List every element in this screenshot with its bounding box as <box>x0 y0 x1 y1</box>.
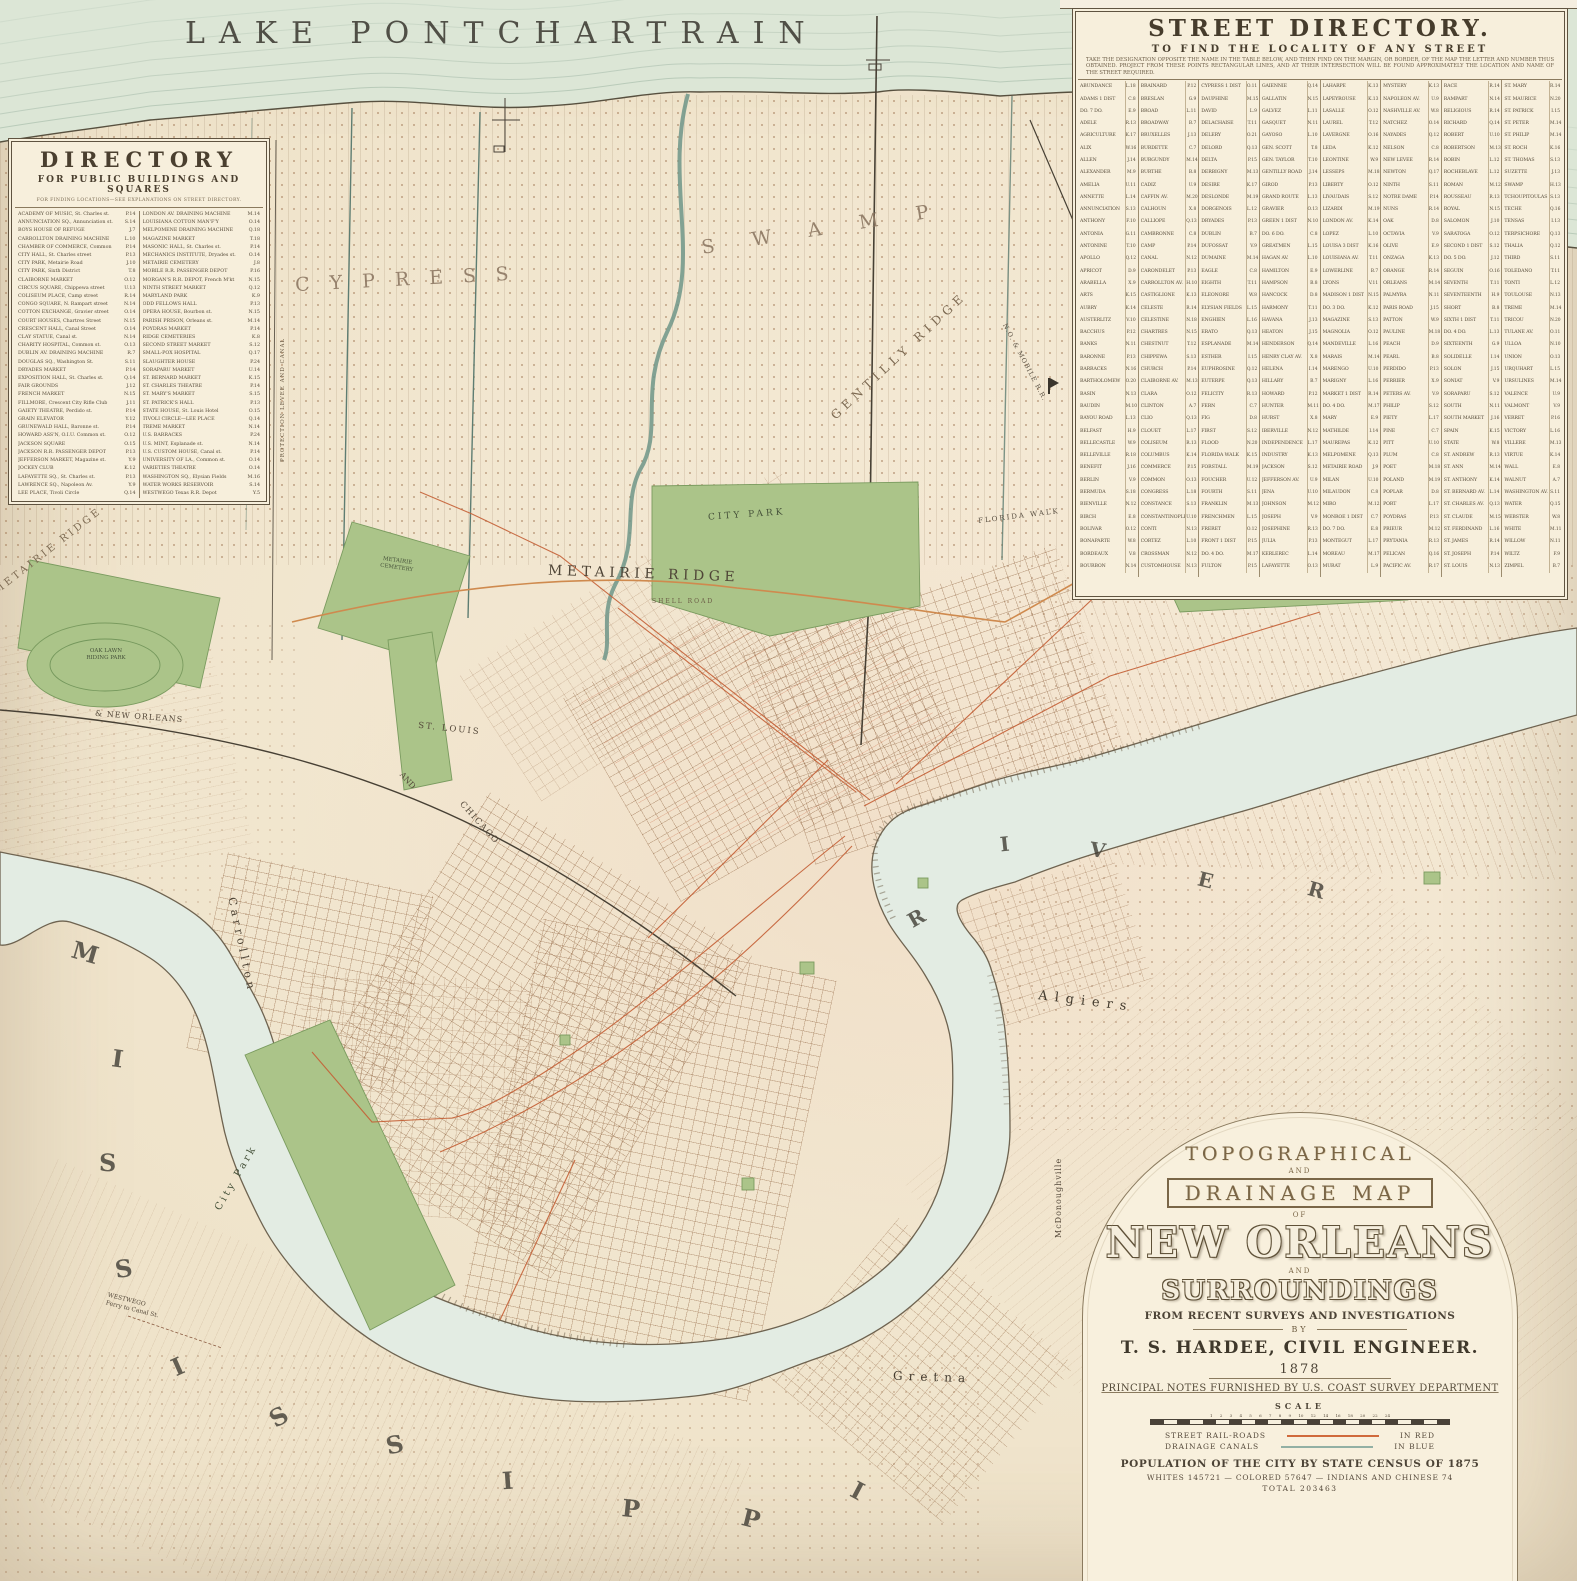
street-entry: PLUMC.8 <box>1383 450 1439 462</box>
directory-entry: ACADEMY OF MUSIC, St. Charles st.P.14 <box>18 211 136 219</box>
street-entry: HUNTERM.11 <box>1262 401 1318 413</box>
directory-entry: COLISEUM PLACE, Camp streetR.14 <box>18 293 136 301</box>
street-entry: PITTU.10 <box>1383 438 1439 450</box>
street-entry: CONSTANCES.13 <box>1141 499 1197 511</box>
water-name-letter: S <box>264 1400 294 1434</box>
street-entry: JOSEPHINER.13 <box>1262 524 1318 536</box>
street-entry: GRAND ROUTEL.13 <box>1262 192 1318 204</box>
street-entry: LOUISIANA AV.T.11 <box>1323 253 1379 265</box>
street-entry: WHITEM.11 <box>1504 524 1560 536</box>
street-entry: ST. PETERM.14 <box>1504 118 1560 130</box>
street-entry: MARIGNYL.16 <box>1323 376 1379 388</box>
street-entry: CLINTONA.7 <box>1141 401 1197 413</box>
street-entry: LAURELT.12 <box>1323 118 1379 130</box>
map-legend: STREET RAIL-ROADS IN RED DRAINAGE CANALS… <box>1165 1431 1435 1451</box>
street-entry: FORSTALLM.19 <box>1201 462 1257 474</box>
street-entry: HAMPSONB.8 <box>1262 278 1318 290</box>
legend-rail-label: STREET RAIL-ROADS <box>1165 1431 1266 1440</box>
street-entry: RICHARDQ.14 <box>1444 118 1500 130</box>
railroad-label-stlouis: ST. LOUIS <box>418 721 481 737</box>
street-entry: BRAINARDP.12 <box>1141 81 1197 93</box>
street-entry: BAUDINM.10 <box>1080 401 1136 413</box>
street-entry: BRUXELLESJ.13 <box>1141 130 1197 142</box>
street-entry: GIRODP.13 <box>1262 180 1318 192</box>
street-entry: FULTONP.15 <box>1201 561 1257 573</box>
street-entry: FRONT 1 DISTP.15 <box>1201 536 1257 548</box>
directory-entry: CONGO SQUARE, N. Rampart streetN.14 <box>18 301 136 309</box>
street-entry: GASQUETN.11 <box>1262 118 1318 130</box>
street-entry: LAHARPEK.13 <box>1323 81 1379 93</box>
street-entry: COLUMBUSK.14 <box>1141 450 1197 462</box>
street-entry: SARATOGAO.12 <box>1444 229 1500 241</box>
directory-entry: NINTH STREET MARKETQ.12 <box>143 285 261 293</box>
street-entry: LIBERTYO.12 <box>1323 180 1379 192</box>
metairie-cemetery-label: METAIRIE CEMETERY <box>351 552 442 578</box>
street-entry: ANTONINET.10 <box>1080 241 1136 253</box>
street-entry: CHIPPEWAS.13 <box>1141 352 1197 364</box>
street-entry: LYONSV.11 <box>1323 278 1379 290</box>
cartouche-surroundings: SURROUNDINGS <box>1083 1276 1517 1306</box>
directory-column-right: LONDON AV. DRAINING MACHINEM.14LOUISIANA… <box>139 211 264 498</box>
street-entry: LONDON AV.K.14 <box>1323 216 1379 228</box>
cartouche-drainage-map: DRAINAGE MAP <box>1167 1178 1434 1208</box>
water-name-letter: E <box>1195 867 1216 894</box>
street-entry: BROADL.11 <box>1141 106 1197 118</box>
directory-entry: JACKSON R.R. PASSENGER DEPOTP.13 <box>18 449 136 457</box>
street-entry: IBERVILLEN.12 <box>1262 426 1318 438</box>
directory-entry: CHAMBER OF COMMERCE, CommonP.14 <box>18 244 136 252</box>
street-entry: SONIATV.9 <box>1444 376 1500 388</box>
street-entry: FOUCHERU.12 <box>1201 475 1257 487</box>
street-entry: ENGHIENL.16 <box>1201 315 1257 327</box>
directory-entry: DUBLIN AV. DRAINING MACHINER.7 <box>18 350 136 358</box>
directory-entry: WATER WORKS RESERVOIRS.14 <box>143 482 261 490</box>
metairie-cemetery-line2: CEMETERY <box>351 559 441 578</box>
street-entry: ST. ROCHK.16 <box>1504 143 1560 155</box>
street-entry: CAFFIN AV.M.20 <box>1141 192 1197 204</box>
street-directory-panel: STREET DIRECTORY. TO FIND THE LOCALITY O… <box>1072 8 1568 600</box>
street-entry: INDUSTRYK.13 <box>1262 450 1318 462</box>
street-entry: ESPLANADEM.14 <box>1201 339 1257 351</box>
street-entry: MANDEVILLEL.16 <box>1323 339 1379 351</box>
street-entry: POETM.18 <box>1383 462 1439 474</box>
railroad-label-mobile: N.O. & MOBILE R.R. <box>1001 322 1049 402</box>
street-entry: ALLENJ.14 <box>1080 155 1136 167</box>
street-entry: ROYALN.15 <box>1444 204 1500 216</box>
street-entry: FLOODN.20 <box>1201 438 1257 450</box>
street-entry: ROCHEBLAVEL.12 <box>1444 167 1500 179</box>
westwego-line2: Ferry to Canal St. <box>105 1299 159 1319</box>
street-entry: ST. CHARLES AV.Q.13 <box>1444 499 1500 511</box>
street-entry: ST. ANTHONYK.14 <box>1444 475 1500 487</box>
street-entry: ANNETTEL.14 <box>1080 192 1136 204</box>
street-entry: NEWTONQ.17 <box>1383 167 1439 179</box>
railroad-label-chicago: CHICAGO <box>457 800 501 847</box>
street-entry: PARIS ROADJ.15 <box>1383 303 1439 315</box>
street-entry: SOUTHN.11 <box>1444 401 1500 413</box>
street-entry: DELORDQ.13 <box>1201 143 1257 155</box>
cartouche-new-orleans: NEW ORLEANS <box>1083 1221 1517 1265</box>
street-entry: BARTHOLOMEWO.20 <box>1080 376 1136 388</box>
street-entry: ST. THOMASS.13 <box>1504 155 1560 167</box>
street-entry: FRENCHMENL.15 <box>1201 512 1257 524</box>
directory-entry: CHARITY HOSPITAL, Common st.O.13 <box>18 342 136 350</box>
street-entry: GREATMENL.15 <box>1262 241 1318 253</box>
directory-subtitle: FOR PUBLIC BUILDINGS AND SQUARES <box>15 175 263 195</box>
directory-entry: TIVOLI CIRCLE—LEE PLACEQ.14 <box>143 416 261 424</box>
street-entry: HILLARYB.7 <box>1262 376 1318 388</box>
directory-entry: LAWRENCE SQ., Napoleon Av.Y.9 <box>18 482 136 490</box>
street-entry: CASTIGLIONEK.13 <box>1141 290 1197 302</box>
directory-entry: CRESCENT HALL, Canal StreetO.14 <box>18 326 136 334</box>
florida-walk-label: FLORIDA WALK <box>978 507 1060 525</box>
street-entry: GAYOSOL.10 <box>1262 130 1318 142</box>
directory-entry: EXPOSITION HALL, St. Charles st.Q.14 <box>18 375 136 383</box>
stipple-texture <box>990 560 1577 1130</box>
street-entry: CORTEZL.10 <box>1141 536 1197 548</box>
street-entry: ERATOQ.13 <box>1201 327 1257 339</box>
street-entry: PALMYRAN.11 <box>1383 290 1439 302</box>
street-entry: JULIAP.13 <box>1262 536 1318 548</box>
cartouche-and2: AND <box>1083 1267 1517 1275</box>
street-entry: WALNUTA.7 <box>1504 475 1560 487</box>
street-entry: DESIREK.17 <box>1201 180 1257 192</box>
street-entry: POPLARD.8 <box>1383 487 1439 499</box>
scale-bar <box>1150 1419 1450 1425</box>
street-entry: VIRTUEK.14 <box>1504 450 1560 462</box>
field-strips-west <box>0 596 254 904</box>
street-entry: CARROLLTON AV.H.10 <box>1141 278 1197 290</box>
street-entry: SEGUINO.16 <box>1444 266 1500 278</box>
street-entry: CHURCHP.14 <box>1141 364 1197 376</box>
street-entry: THIRDS.11 <box>1504 253 1560 265</box>
directory-entry: MASONIC HALL, St. Charles st.P.14 <box>143 244 261 252</box>
bayou-st-john <box>604 94 688 660</box>
street-entry: CAMPP.14 <box>1141 241 1197 253</box>
street-entry: DUMAINEM.14 <box>1201 253 1257 265</box>
directory-entry: WASHINGTON SQ., Elysian FieldsM.16 <box>143 474 261 482</box>
street-entry: CONGRESSL.18 <box>1141 487 1197 499</box>
street-entry: BERLINV.9 <box>1080 475 1136 487</box>
street-entry: CYPRESS 1 DISTO.11 <box>1201 81 1257 93</box>
water-name-letter: R <box>903 903 929 932</box>
legend-canal-row: DRAINAGE CANALS IN BLUE <box>1165 1442 1435 1451</box>
street-entry: SOUTH MARKETJ.16 <box>1444 413 1500 425</box>
street-entry: SORAPARUS.12 <box>1444 389 1500 401</box>
street-directory-table: ABUNDANCEL.18ADAMS 1 DISTC.8DO. 7 DO.E.9… <box>1078 79 1562 577</box>
street-entry: JEFFERSON AV.U.9 <box>1262 475 1318 487</box>
street-entry: ROUSSEAUR.13 <box>1444 192 1500 204</box>
street-entry: POLANDM.19 <box>1383 475 1439 487</box>
street-entry: HAVANAJ.13 <box>1262 315 1318 327</box>
street-entry: MYSTERYK.13 <box>1383 81 1439 93</box>
street-entry: FRERETO.12 <box>1201 524 1257 536</box>
directory-entry: SLAUGHTER HOUSEP.24 <box>143 359 261 367</box>
street-entry: SOLONJ.15 <box>1444 364 1500 376</box>
street-entry: FELICITYR.13 <box>1201 389 1257 401</box>
street-entry: EIGHTHT.11 <box>1201 278 1257 290</box>
directory-entry: LONDON AV. DRAINING MACHINEM.14 <box>143 211 261 219</box>
street-entry: ST. JAMESR.14 <box>1444 536 1500 548</box>
street-entry: PRIEURM.12 <box>1383 524 1439 536</box>
metairie-ridge-west-label: METAIRIE RIDGE <box>0 506 104 597</box>
street-entry: TOLEDANOT.11 <box>1504 266 1560 278</box>
directory-entry: LOUISIANA COTTON MAN'F'YO.14 <box>143 219 261 227</box>
street-entry: PRYTANIAR.13 <box>1383 536 1439 548</box>
water-name-letter: P <box>621 1493 642 1524</box>
street-entry: BURTHEB.8 <box>1141 167 1197 179</box>
street-entry: JENAU.10 <box>1262 487 1318 499</box>
street-entry: PHILIPS.12 <box>1383 401 1439 413</box>
street-entry: BANKSN.11 <box>1080 339 1136 351</box>
street-entry: HOWARDP.12 <box>1262 389 1318 401</box>
street-entry: CHARTRESN.15 <box>1141 327 1197 339</box>
street-entry: TECHEQ.16 <box>1504 204 1560 216</box>
mcdonoughville-label: McDonoughville <box>1054 1158 1063 1238</box>
water-name-letter: I <box>110 1043 125 1073</box>
street-entry: GREEN 1 DISTN.10 <box>1262 216 1318 228</box>
street-entry: BELLEVILLER.18 <box>1080 450 1136 462</box>
street-entry: ST. BERNARD AV.L.14 <box>1444 487 1500 499</box>
cartouche-from-surveys: FROM RECENT SURVEYS AND INVESTIGATIONS <box>1083 1310 1517 1322</box>
street-entry: ROMANM.12 <box>1444 180 1500 192</box>
directory-column-left: ACADEMY OF MUSIC, St. Charles st.P.14ANN… <box>15 211 139 498</box>
legend-rail-line <box>1287 1435 1379 1437</box>
water-name-letter: M <box>69 935 103 970</box>
street-entry: VILLEREM.13 <box>1504 438 1560 450</box>
protection-levee-line <box>272 140 276 660</box>
street-entry: GEN. SCOTTT.8 <box>1262 143 1318 155</box>
directory-entry: LAFAYETTE SQ., St. Charles st.P.13 <box>18 474 136 482</box>
street-column: ST. MARYR.14ST. MAURICEN.20ST. PATRICKI.… <box>1501 80 1562 577</box>
legend-rail-row: STREET RAIL-ROADS IN RED <box>1165 1431 1435 1440</box>
street-entry: EUTERPEQ.13 <box>1201 376 1257 388</box>
street-entry: MONTEGUTL.17 <box>1323 536 1379 548</box>
map-canvas: LAKE PONTCHARTRAIN SPANISH FORT CYPRESS … <box>0 0 1577 1581</box>
street-entry: SWAMPH.13 <box>1504 180 1560 192</box>
street-entry: ST. MARYR.14 <box>1504 81 1560 93</box>
by-word: BY <box>1291 1325 1308 1334</box>
street-entry: ANTONIAG.11 <box>1080 229 1136 241</box>
legend-canal-note: IN BLUE <box>1394 1442 1435 1451</box>
street-entry: WASHINGTON AV.S.11 <box>1504 487 1560 499</box>
street-grid-gretna <box>767 1218 1075 1523</box>
street-entry: ADELER.13 <box>1080 118 1136 130</box>
street-entry: ROBERTU.10 <box>1444 130 1500 142</box>
directory-entry: U.S. BARRACKSP.24 <box>143 432 261 440</box>
street-entry: HENDERSONQ.14 <box>1262 339 1318 351</box>
street-entry: ONZAGAK.13 <box>1383 253 1439 265</box>
directory-entry: ST. BERNARD MARKETK.15 <box>143 375 261 383</box>
street-entry: ORLEANSM.14 <box>1383 278 1439 290</box>
street-entry: MARYE.9 <box>1323 413 1379 425</box>
street-directory-instructions: TAKE THE DESIGNATION OPPOSITE THE NAME I… <box>1086 57 1554 76</box>
street-entry: COMMONO.13 <box>1141 475 1197 487</box>
water-name-letter: V <box>1088 837 1107 863</box>
street-entry: AUBRYK.14 <box>1080 303 1136 315</box>
street-entry: WILTZF.9 <box>1504 549 1560 561</box>
directory-entry: SECOND STREET MARKETS.12 <box>143 342 261 350</box>
street-entry: DAVIDL.9 <box>1201 106 1257 118</box>
street-entry: NOTRE DAMEP.14 <box>1383 192 1439 204</box>
street-entry: DUBLINB.7 <box>1201 229 1257 241</box>
water-name-letter: R <box>1305 876 1328 904</box>
street-entry: SEVENTEENTHH.9 <box>1444 290 1500 302</box>
directory-entry: JOCKEY CLUBK.12 <box>18 465 136 473</box>
street-entry: VALENCEU.9 <box>1504 389 1560 401</box>
directory-entry: DRYADES MARKETP.14 <box>18 367 136 375</box>
street-entry: CALHOUNX.8 <box>1141 204 1197 216</box>
directory-entry: CITY PARK, Sixth DistrictT.8 <box>18 268 136 276</box>
street-grid-carrollton <box>187 852 434 1091</box>
stipple-texture <box>0 620 300 920</box>
cypress-swamp-label: CYPRESS <box>295 262 530 296</box>
street-entry: WEBSTERW.8 <box>1504 512 1560 524</box>
directory-entry: CARROLLTON DRAINING MACHINEL.10 <box>18 236 136 244</box>
street-entry: ST. ANDREWR.13 <box>1444 450 1500 462</box>
title-cartouche: TOPOGRAPHICAL AND DRAINAGE MAP OF NEW OR… <box>1082 1112 1518 1581</box>
street-entry: DESLONDEM.19 <box>1201 192 1257 204</box>
water-name-letter: S <box>98 1148 116 1178</box>
legend-canal-label: DRAINAGE CANALS <box>1165 1442 1259 1451</box>
directory-entry: MECHANICS INSTITUTE, Dryades st.O.14 <box>143 252 261 260</box>
street-entry: ARTSK.15 <box>1080 290 1136 302</box>
cartouche-engineer: T. S. HARDEE, CIVIL ENGINEER. <box>1083 1338 1517 1358</box>
rule-left <box>1193 1329 1283 1330</box>
street-entry: SIXTEENTHG.9 <box>1444 339 1500 351</box>
street-entry: LAFAYETTEO.13 <box>1262 561 1318 573</box>
street-entry: COLISEUMR.13 <box>1141 438 1197 450</box>
street-entry: ELEONOREW.8 <box>1201 290 1257 302</box>
street-entry: VALMONTV.9 <box>1504 401 1560 413</box>
water-name-letter: I <box>501 1466 514 1496</box>
street-entry: LEDAK.12 <box>1323 143 1379 155</box>
directory-entry: HOWARD ASS'N, O.I.U. Common st.O.12 <box>18 432 136 440</box>
street-entry: TENSASI.13 <box>1504 216 1560 228</box>
street-entry: BIENVILLEN.12 <box>1080 499 1136 511</box>
street-entry: CALLIOPEQ.13 <box>1141 216 1197 228</box>
population-total: TOTAL 203463 <box>1083 1484 1517 1493</box>
cartouche-by: BY <box>1083 1325 1517 1334</box>
directory-entry: ST. CHARLES THEATREP.14 <box>143 383 261 391</box>
street-entry: PELICANQ.16 <box>1383 549 1439 561</box>
street-entry: STATEW.8 <box>1444 438 1500 450</box>
street-entry: PATTONW.9 <box>1383 315 1439 327</box>
street-entry: DERBIGNYM.13 <box>1201 167 1257 179</box>
street-entry: ST. CLAUDEM.15 <box>1444 512 1500 524</box>
water-name-letter: I <box>167 1351 189 1382</box>
legend-rail-note: IN RED <box>1400 1431 1435 1440</box>
street-entry: TREMEM.14 <box>1504 303 1560 315</box>
street-entry: BERMUDAS.18 <box>1080 487 1136 499</box>
street-entry: DO. 7 DO.E.9 <box>1080 106 1136 118</box>
street-entry: GRAVIERO.13 <box>1262 204 1318 216</box>
street-entry: PEACHD.9 <box>1383 339 1439 351</box>
street-entry: MATHILDEI.14 <box>1323 426 1379 438</box>
street-entry: TRICOUN.20 <box>1504 315 1560 327</box>
street-entry: ROBINL.12 <box>1444 155 1500 167</box>
street-entry: INDEPENDENCEL.17 <box>1262 438 1318 450</box>
directory-entry: MARYLAND PARKK.9 <box>143 293 261 301</box>
directory-entry: FILLMORE, Crescent City Rifle ClubJ.11 <box>18 400 136 408</box>
street-entry: HAGAN AV.L.10 <box>1262 253 1318 265</box>
city-park-sixth-label: City Park <box>213 1143 259 1212</box>
street-column: MYSTERYK.13NAPOLEON AV.U.9NASHVILLE AV.W… <box>1380 80 1441 577</box>
street-entry: CLARAO.12 <box>1141 389 1197 401</box>
street-column: BRAINARDP.12BRESLANG.9BROADL.11BROADWAYB… <box>1138 80 1199 577</box>
street-entry: KERLERECL.14 <box>1262 549 1318 561</box>
ferry-route <box>128 1316 222 1348</box>
street-entry: NAYADESQ.12 <box>1383 130 1439 142</box>
street-entry: MARKET 1 DISTR.14 <box>1323 389 1379 401</box>
street-entry: ST. ANNM.14 <box>1444 462 1500 474</box>
street-entry: AUSTERLITZV.10 <box>1080 315 1136 327</box>
street-entry: MAGNOLIAO.12 <box>1323 327 1379 339</box>
lakefront-piers <box>492 60 1108 152</box>
drainage-canals <box>246 96 1012 640</box>
street-entry: CUSTOMHOUSEN.13 <box>1141 561 1197 573</box>
street-entry: BIRCHE.8 <box>1080 512 1136 524</box>
directory-entry: GRUNEWALD HALL, Baronne st.P.14 <box>18 424 136 432</box>
street-entry: LIVAUDAISS.12 <box>1323 192 1379 204</box>
street-entry: LIZARDIM.19 <box>1323 204 1379 216</box>
street-entry: FRANKLINM.13 <box>1201 499 1257 511</box>
directory-entry: JEFFERSON MARKET, Magazine st.Y.9 <box>18 457 136 465</box>
street-entry: CELESTINEN.18 <box>1141 315 1197 327</box>
street-entry: ULLOAN.10 <box>1504 339 1560 351</box>
water-name-letter: S <box>383 1429 406 1461</box>
street-entry: LOWERLINEB.7 <box>1323 266 1379 278</box>
street-entry: VICTORYL.16 <box>1504 426 1560 438</box>
street-entry: OLIVEE.9 <box>1383 241 1439 253</box>
street-entry: HURSTX.8 <box>1262 413 1318 425</box>
street-entry: CONTIN.13 <box>1141 524 1197 536</box>
street-entry: POYDRASP.13 <box>1383 512 1439 524</box>
street-directory-title: STREET DIRECTORY. <box>1078 15 1562 42</box>
street-entry: MELPOMENEQ.13 <box>1323 450 1379 462</box>
street-entry: ZIMPELB.7 <box>1504 561 1560 573</box>
street-entry: PORTL.17 <box>1383 499 1439 511</box>
street-entry: ST. PHILIPM.14 <box>1504 130 1560 142</box>
street-entry: ST. PATRICKI.15 <box>1504 106 1560 118</box>
street-entry: ELYSIAN FIELDSL.15 <box>1201 303 1257 315</box>
railroad-label-neworleans: & NEW ORLEANS <box>95 709 184 724</box>
street-entry: FIGD.8 <box>1201 413 1257 425</box>
directory-entry: U.S. CUSTOM HOUSE, Canal st.P.14 <box>143 449 261 457</box>
street-entry: SUZETTEJ.13 <box>1504 167 1560 179</box>
street-entry: PACIFIC AV.R.17 <box>1383 561 1439 573</box>
lake-label: LAKE PONTCHARTRAIN <box>185 16 819 51</box>
street-entry: NAPOLEON AV.U.9 <box>1383 94 1439 106</box>
street-entry: SEVENTHT.11 <box>1444 278 1500 290</box>
street-entry: ADAMS 1 DISTC.8 <box>1080 94 1136 106</box>
directory-entry: WESTWEGO Texas R.R. DepotY.5 <box>143 490 261 498</box>
street-entry: TERPSICHOREQ.13 <box>1504 229 1560 241</box>
directory-entry: ODD FELLOWS HALLP.13 <box>143 301 261 309</box>
street-entry: APOLLOQ.12 <box>1080 253 1136 265</box>
street-entry: CHESTNUTT.12 <box>1141 339 1197 351</box>
directory-entry: ST. MARY'S MARKETS.15 <box>143 391 261 399</box>
buildings-directory-panel: DIRECTORY FOR PUBLIC BUILDINGS AND SQUAR… <box>8 138 270 505</box>
street-entry: TOULOUSEN.13 <box>1504 290 1560 302</box>
directory-entry: GRAIN ELEVATORY.12 <box>18 416 136 424</box>
city-park-label: CITY PARK <box>708 507 786 522</box>
street-column: LAHARPEK.13LAPEYROUSEK.13LASALLEO.12LAUR… <box>1320 80 1381 577</box>
street-entry: WILLOWN.11 <box>1504 536 1560 548</box>
street-entry: AGRICULTUREK.17 <box>1080 130 1136 142</box>
street-entry: PERDIDOP.13 <box>1383 364 1439 376</box>
street-entry: MARAISM.14 <box>1323 352 1379 364</box>
